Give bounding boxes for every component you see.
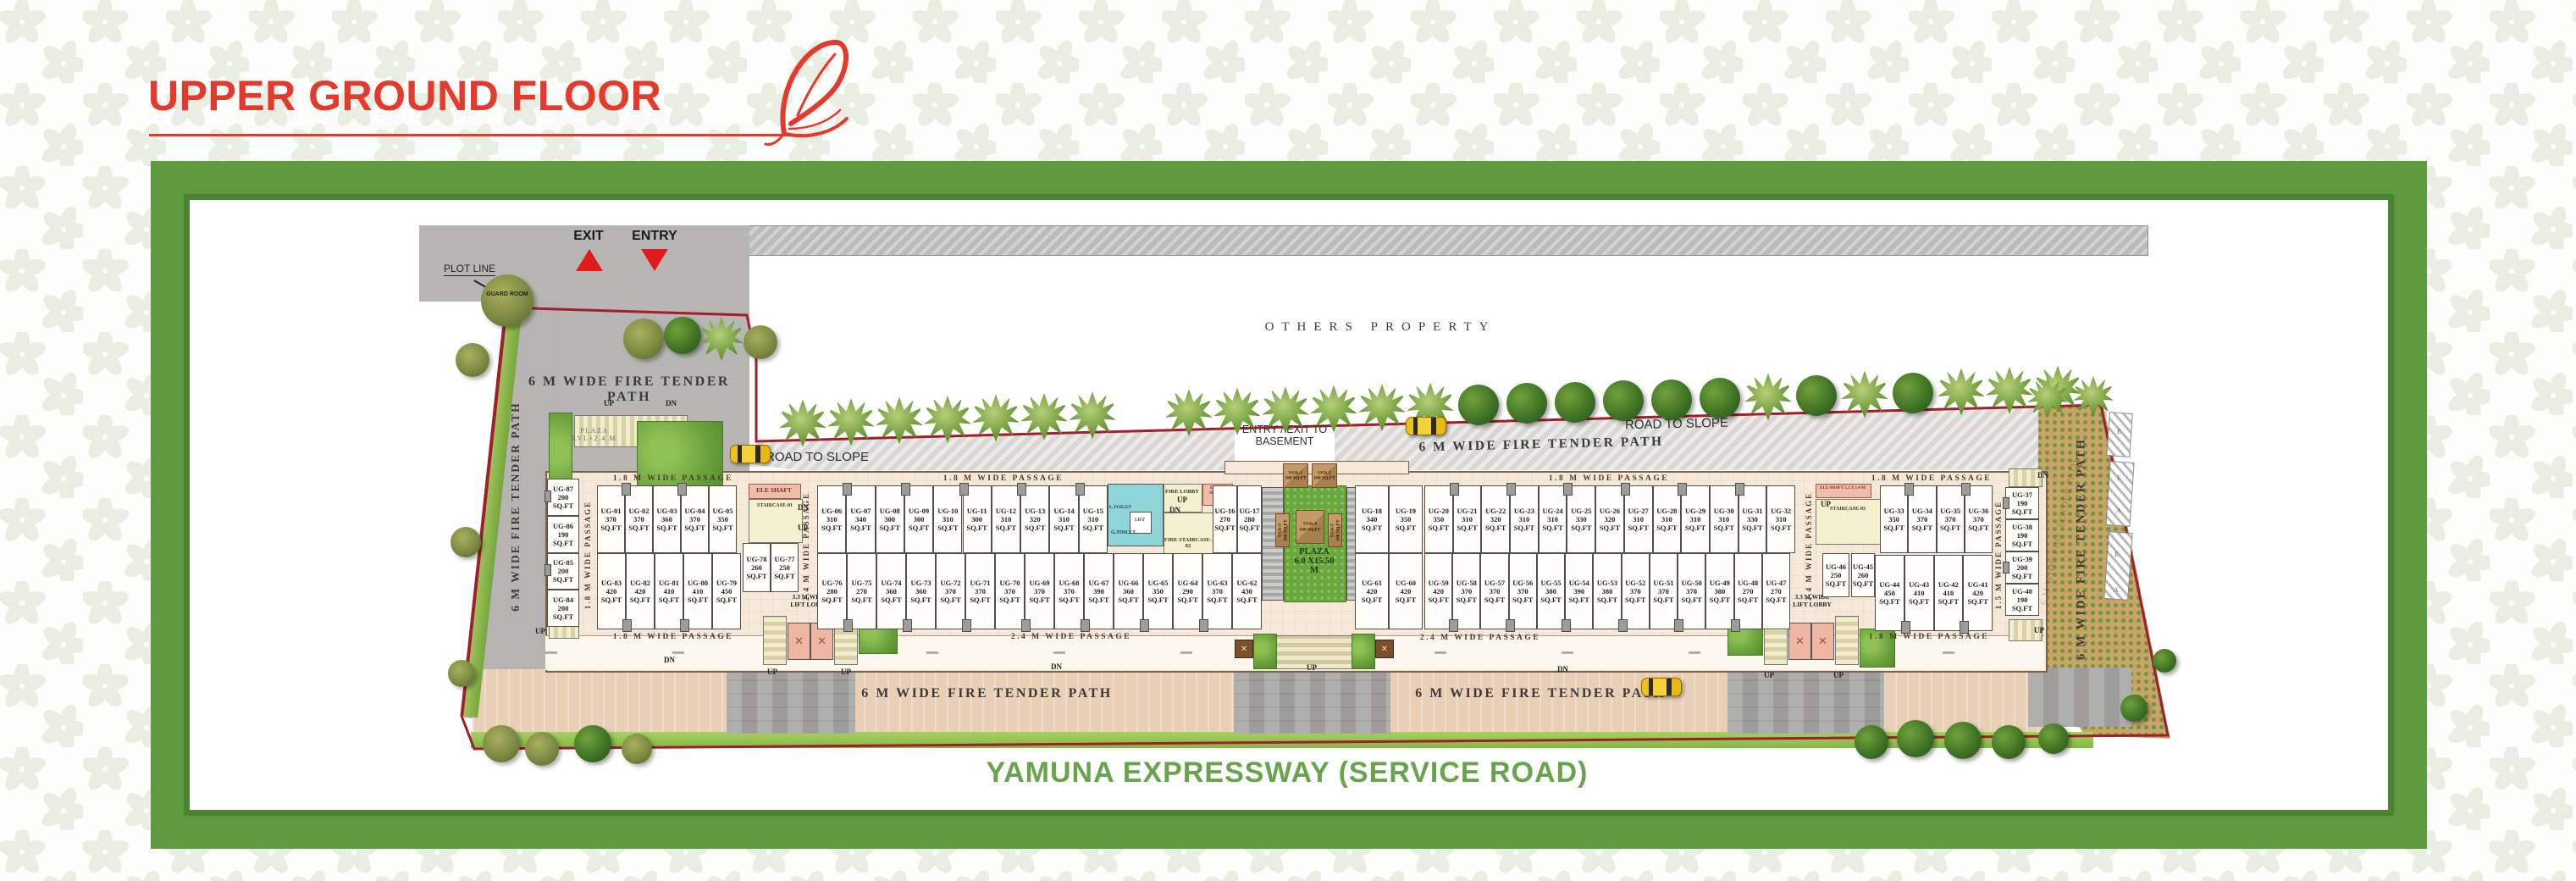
unit-UG-32: UG-32 310 SQ.FT	[1766, 485, 1795, 553]
unit-label-UG-29: UG-29 310 SQ.FT	[1685, 507, 1705, 532]
up-marker: UP	[1821, 500, 1831, 508]
unit-UG-53: UG-53 380 SQ.FT	[1593, 553, 1621, 629]
unit-label-UG-60: UG-60 420 SQ.FT	[1396, 579, 1416, 604]
unit-label-UG-82: UG-82 420 SQ.FT	[630, 579, 650, 604]
unit-UG-21: UG-21 310 SQ.FT	[1453, 485, 1482, 553]
unit-label-UG-31: UG-31 330 SQ.FT	[1742, 507, 1762, 532]
up-marker: UP	[1177, 496, 1187, 504]
passage-label-p18: 1.8 M WIDE PASSAGE	[597, 633, 749, 641]
kiosk-UGk-2: UGk-2 160 SQ.FT	[1312, 463, 1337, 488]
unit-label-UG-86: UG-86 190 SQ.FT	[553, 522, 573, 547]
unit-label-UG-33: UG-33 350 SQ.FT	[1883, 507, 1904, 532]
up-marker: UP	[767, 668, 777, 676]
up-marker: UP	[1764, 671, 1774, 679]
unit-UG-04: UG-04 370 SQ.FT	[681, 485, 709, 553]
lift-box: ✕	[1811, 623, 1834, 660]
unit-label-UG-79: UG-79 450 SQ.FT	[716, 579, 737, 604]
unit-label-UG-36: UG-36 370 SQ.FT	[1968, 507, 1988, 532]
fire-path-bottom-left-label: 6 M WIDE FIRE TENDER PATH	[854, 686, 1120, 701]
unit-UG-78: UG-78 260 SQ.FT	[743, 543, 771, 592]
passage-label-p18: 1.8 M WIDE PASSAGE	[1533, 474, 1685, 483]
unit-label-UG-49: UG-49 380 SQ.FT	[1710, 579, 1730, 604]
unit-UG-30: UG-30 310 SQ.FT	[1710, 485, 1739, 553]
unit-label-UG-14: UG-14 310 SQ.FT	[1053, 507, 1074, 532]
floor-plan: ✕ ✕ ✕ ✕ ✕ ✕	[0, 0, 2576, 881]
unit-label-UG-72: UG-72 370 SQ.FT	[940, 579, 960, 604]
dn-marker: DN	[1051, 662, 1062, 671]
unit-label-UG-67: UG-67 390 SQ.FT	[1088, 579, 1108, 604]
lobby-stair	[763, 616, 787, 665]
unit-label-UG-17: UG-17 280 SQ.FT	[1239, 507, 1259, 532]
unit-label-UG-48: UG-48 270 SQ.FT	[1738, 579, 1758, 604]
tree-icon	[1992, 725, 2026, 759]
kiosk-UGk-1: UGk-1 160 SQ.FT	[1283, 463, 1308, 488]
passage-label-p18: 1.8 M WIDE PASSAGE	[1853, 633, 2005, 641]
unit-UG-47: UG-47 270 SQ.FT	[1762, 553, 1790, 629]
unit-UG-61: UG-61 420 SQ.FT	[1355, 553, 1389, 629]
unit-UG-43: UG-43 410 SQ.FT	[1904, 555, 1934, 631]
unit-label-UG-09: UG-09 300 SQ.FT	[909, 507, 929, 532]
unit-UG-11: UG-11 300 SQ.FT	[963, 485, 992, 553]
unit-label-UG-21: UG-21 310 SQ.FT	[1457, 507, 1477, 532]
unit-label-UG-16: UG-16 270 SQ.FT	[1214, 507, 1235, 532]
unit-label-UG-69: UG-69 370 SQ.FT	[1029, 579, 1049, 604]
unit-label-UG-57: UG-57 370 SQ.FT	[1484, 579, 1505, 604]
ramp-letter-2: A	[2116, 507, 2121, 514]
tree-icon	[1700, 378, 1740, 418]
unit-UG-44: UG-44 450 SQ.FT	[1875, 555, 1904, 631]
tree-icon	[1651, 380, 1692, 420]
tree-icon	[744, 325, 777, 359]
exit-label: EXIT	[566, 229, 611, 244]
unit-UG-65: UG-65 350 SQ.FT	[1143, 553, 1173, 629]
unit-label-UG-38: UG-38 190 SQ.FT	[2012, 523, 2032, 548]
tree-icon	[1506, 383, 1547, 424]
unit-UG-67: UG-67 390 SQ.FT	[1084, 553, 1114, 629]
passage-label-p18: 1.8 M WIDE PASSAGE	[583, 501, 592, 609]
unit-UG-73: UG-73 360 SQ.FT	[906, 553, 936, 629]
unit-UG-55: UG-55 380 SQ.FT	[1537, 553, 1565, 629]
unit-UG-62: UG-62 430 SQ.FT	[1232, 553, 1262, 629]
unit-UG-86: UG-86 190 SQ.FT	[547, 516, 579, 553]
unit-UG-75: UG-75 270 SQ.FT	[847, 553, 876, 629]
exit-arrow-icon	[576, 249, 603, 271]
unit-label-UG-23: UG-23 310 SQ.FT	[1514, 507, 1534, 532]
unit-UG-84: UG-84 200 SQ.FT	[547, 590, 579, 627]
unit-UG-05: UG-05 350 SQ.FT	[709, 485, 737, 553]
unit-UG-20: UG-20 350 SQ.FT	[1424, 485, 1453, 553]
unit-label-UG-50: UG-50 370 SQ.FT	[1682, 579, 1702, 604]
unit-UG-42: UG-42 410 SQ.FT	[1934, 555, 1964, 631]
unit-label-UG-34: UG-34 370 SQ.FT	[1912, 507, 1932, 532]
unit-UG-76: UG-76 280 SQ.FT	[817, 553, 847, 629]
others-property-label: OTHERS PROPERTY	[1152, 320, 1609, 335]
taxi-car-icon	[730, 445, 771, 463]
unit-label-UG-35: UG-35 370 SQ.FT	[1940, 507, 1960, 532]
unit-UG-10: UG-10 310 SQ.FT	[933, 485, 962, 553]
unit-label-UG-41: UG-41 420 SQ.FT	[1967, 580, 1987, 606]
plaza-upper-label: PLAZA LVL+2.4 M	[559, 427, 630, 442]
unit-label-UG-80: UG-80 410 SQ.FT	[688, 579, 708, 604]
unit-label-UG-74: UG-74 360 SQ.FT	[881, 579, 901, 604]
unit-label-UG-15: UG-15 310 SQ.FT	[1083, 507, 1103, 532]
unit-label-UG-04: UG-04 370 SQ.FT	[684, 507, 705, 532]
unit-UG-33: UG-33 350 SQ.FT	[1880, 485, 1908, 553]
guard-room-tree-icon	[481, 274, 533, 327]
dn-marker: DN	[798, 503, 809, 512]
unit-label-UG-73: UG-73 360 SQ.FT	[910, 579, 931, 604]
unit-UG-58: UG-58 370 SQ.FT	[1452, 553, 1480, 629]
unit-UG-12: UG-12 310 SQ.FT	[992, 485, 1020, 553]
dn-marker: DN	[2037, 471, 2048, 479]
unit-UG-39: UG-39 200 SQ.FT	[2005, 551, 2039, 584]
unit-label-UG-81: UG-81 410 SQ.FT	[659, 579, 679, 604]
unit-UG-16: UG-16 270 SQ.FT	[1213, 485, 1237, 553]
entry-label: ENTRY	[627, 229, 682, 244]
lift-box: ✕	[1788, 623, 1811, 660]
unit-UG-45: UG-45 260 SQ.FT	[1851, 553, 1875, 597]
unit-label-UG-47: UG-47 270 SQ.FT	[1766, 579, 1786, 604]
passage-label-p24: 2.4 M WIDE PASSAGE	[1404, 634, 1556, 642]
passage-label-p15: 1.5 M WIDE PASSAGE	[1994, 501, 2003, 609]
dn-marker: DN	[1169, 506, 1180, 514]
unit-UG-77: UG-77 250 SQ.FT	[771, 543, 799, 592]
lift-box: ✕	[788, 623, 810, 660]
plot-line-label: PLOT LINE	[444, 263, 495, 276]
unit-UG-27: UG-27 310 SQ.FT	[1624, 485, 1653, 553]
unit-label-UG-27: UG-27 310 SQ.FT	[1628, 507, 1649, 532]
unit-label-UG-10: UG-10 310 SQ.FT	[937, 507, 958, 532]
unit-UG-68: UG-68 370 SQ.FT	[1054, 553, 1084, 629]
passage-label-p18: 1.8 M WIDE PASSAGE	[1855, 474, 2008, 483]
unit-UG-13: UG-13 320 SQ.FT	[1020, 485, 1049, 553]
unit-label-UG-02: UG-02 370 SQ.FT	[628, 507, 649, 532]
unit-label-UG-70: UG-70 370 SQ.FT	[999, 579, 1020, 604]
unit-UG-56: UG-56 370 SQ.FT	[1509, 553, 1537, 629]
unit-label-UG-85: UG-85 200 SQ.FT	[553, 558, 573, 584]
unit-UG-87: UG-87 200 SQ.FT	[547, 479, 579, 516]
fire-path-left-block-label: 6 M WIDE FIRE TENDER PATH	[506, 374, 752, 405]
unit-UG-35: UG-35 370 SQ.FT	[1937, 485, 1965, 553]
unit-label-UG-28: UG-28 310 SQ.FT	[1656, 507, 1677, 532]
guard-room-label: GUARD ROOM	[483, 291, 532, 297]
unit-label-UG-22: UG-22 320 SQ.FT	[1485, 507, 1506, 532]
tree-icon	[664, 317, 701, 354]
kiosk-label-UGk-5: UGk-5 160 SQ.FT	[1329, 519, 1341, 540]
unit-label-UG-76: UG-76 280 SQ.FT	[821, 579, 842, 604]
unit-label-UG-07: UG-07 340 SQ.FT	[850, 507, 871, 532]
unit-UG-64: UG-64 290 SQ.FT	[1173, 553, 1202, 629]
unit-UG-28: UG-28 310 SQ.FT	[1653, 485, 1682, 553]
unit-label-UG-55: UG-55 380 SQ.FT	[1540, 579, 1561, 604]
unit-label-UG-44: UG-44 450 SQ.FT	[1879, 580, 1899, 606]
unit-label-UG-64: UG-64 290 SQ.FT	[1177, 579, 1197, 604]
unit-label-UG-52: UG-52 370 SQ.FT	[1625, 579, 1645, 604]
unit-label-UG-43: UG-43 410 SQ.FT	[1909, 580, 1929, 606]
unit-label-UG-78: UG-78 260 SQ.FT	[746, 555, 766, 580]
tree-icon	[1944, 722, 1982, 759]
unit-UG-83: UG-83 420 SQ.FT	[597, 553, 626, 629]
unit-UG-29: UG-29 310 SQ.FT	[1681, 485, 1710, 553]
unit-label-UG-77: UG-77 250 SQ.FT	[774, 555, 794, 580]
passage-label-p24: 2.4 M WIDE PASSAGE	[995, 633, 1147, 641]
unit-UG-02: UG-02 370 SQ.FT	[625, 485, 653, 553]
unit-UG-50: UG-50 370 SQ.FT	[1678, 553, 1705, 629]
unit-UG-41: UG-41 420 SQ.FT	[1963, 555, 1993, 631]
ramp-letter-3: E	[2114, 551, 2119, 558]
tree-icon	[2038, 723, 2069, 754]
unit-UG-85: UG-85 200 SQ.FT	[547, 553, 579, 590]
unit-label-UG-68: UG-68 370 SQ.FT	[1059, 579, 1079, 604]
unit-UG-15: UG-15 310 SQ.FT	[1079, 485, 1108, 553]
unit-label-UG-87: UG-87 200 SQ.FT	[553, 485, 573, 510]
unit-label-UG-06: UG-06 310 SQ.FT	[821, 507, 842, 532]
ramp-letter-0: E	[2117, 428, 2121, 435]
unit-UG-25: UG-25 330 SQ.FT	[1567, 485, 1595, 553]
unit-UG-03: UG-03 360 SQ.FT	[653, 485, 681, 553]
ramp-letter-4: A	[2114, 586, 2119, 594]
unit-UG-82: UG-82 420 SQ.FT	[626, 553, 655, 629]
unit-UG-37: UG-37 190 SQ.FT	[2005, 487, 2039, 519]
tree-icon	[448, 660, 475, 687]
unit-UG-08: UG-08 300 SQ.FT	[876, 485, 904, 553]
fire-path-left-vertical-label: 6 M WIDE FIRE TENDER PATH	[509, 402, 522, 611]
tree-icon	[2120, 695, 2148, 722]
unit-label-UG-20: UG-20 350 SQ.FT	[1429, 507, 1449, 532]
unit-UG-60: UG-60 420 SQ.FT	[1389, 553, 1423, 629]
unit-UG-26: UG-26 320 SQ.FT	[1595, 485, 1624, 553]
ele-shaft-3-label: ELE SHAFT 5.2 X 1.4 M	[1816, 486, 1870, 490]
unit-UG-81: UG-81 410 SQ.FT	[655, 553, 683, 629]
unit-UG-72: UG-72 370 SQ.FT	[936, 553, 965, 629]
unit-label-UG-19: UG-19 350 SQ.FT	[1396, 507, 1416, 532]
tree-icon	[1458, 385, 1499, 425]
unit-UG-54: UG-54 390 SQ.FT	[1565, 553, 1593, 629]
tree-icon	[456, 343, 489, 377]
unit-label-UG-45: UG-45 260 SQ.FT	[1853, 562, 1873, 588]
unit-label-UG-63: UG-63 370 SQ.FT	[1207, 579, 1227, 604]
unit-UG-19: UG-19 350 SQ.FT	[1389, 485, 1423, 553]
unit-UG-49: UG-49 380 SQ.FT	[1705, 553, 1733, 629]
unit-label-UG-66: UG-66 360 SQ.FT	[1118, 579, 1138, 604]
unit-label-UG-03: UG-03 360 SQ.FT	[656, 507, 677, 532]
unit-label-UG-84: UG-84 200 SQ.FT	[553, 596, 573, 621]
kiosk-label-UGk-1: UGk-1 160 SQ.FT	[1285, 470, 1306, 481]
unit-UG-06: UG-06 310 SQ.FT	[817, 485, 846, 553]
unit-UG-63: UG-63 370 SQ.FT	[1202, 553, 1232, 629]
kiosk-UGk-3: UGk-3 160 SQ.FT	[1275, 513, 1290, 547]
unit-label-UG-30: UG-30 310 SQ.FT	[1714, 507, 1734, 532]
unit-UG-71: UG-71 370 SQ.FT	[965, 553, 995, 629]
ele-shaft-1-label: ELE SHAFT	[749, 486, 799, 494]
tree-icon	[2153, 649, 2176, 673]
unit-label-UG-37: UG-37 190 SQ.FT	[2012, 490, 2032, 516]
tree-icon	[1893, 373, 1933, 413]
service-road-label: YAMUNA EXPRESSWAY (SERVICE ROAD)	[440, 756, 2134, 790]
paver-ramp	[2105, 461, 2134, 527]
kiosk-label-UGk-3: UGk-3 160 SQ.FT	[1277, 519, 1288, 540]
unit-UG-34: UG-34 370 SQ.FT	[1908, 485, 1936, 553]
plaza-center-label: PLAZA 6.0 X15.50 M	[1280, 547, 1349, 575]
unit-UG-17: UG-17 280 SQ.FT	[1237, 485, 1262, 553]
tree-icon	[1796, 375, 1837, 416]
unit-UG-23: UG-23 310 SQ.FT	[1510, 485, 1539, 553]
unit-label-UG-56: UG-56 370 SQ.FT	[1512, 579, 1533, 604]
unit-UG-14: UG-14 310 SQ.FT	[1049, 485, 1078, 553]
up-marker: UP	[604, 399, 614, 407]
unit-label-UG-51: UG-51 370 SQ.FT	[1653, 579, 1673, 604]
unit-UG-40: UG-40 190 SQ.FT	[2005, 584, 2039, 616]
unit-UG-38: UG-38 190 SQ.FT	[2005, 519, 2039, 551]
up-marker: UP	[2034, 626, 2044, 634]
unit-UG-80: UG-80 410 SQ.FT	[683, 553, 712, 629]
taxi-car-icon	[1406, 417, 1446, 435]
unit-label-UG-58: UG-58 370 SQ.FT	[1457, 579, 1477, 604]
kiosk-label-UGk-4: UGk-4 160 SQ.FT	[1299, 521, 1320, 532]
unit-label-UG-71: UG-71 370 SQ.FT	[970, 579, 990, 604]
unit-UG-18: UG-18 340 SQ.FT	[1355, 485, 1389, 553]
passage-label-p18: 1.8 M WIDE PASSAGE	[927, 474, 1080, 483]
unit-label-UG-24: UG-24 310 SQ.FT	[1542, 507, 1562, 532]
unit-label-UG-11: UG-11 300 SQ.FT	[966, 507, 987, 532]
unit-label-UG-42: UG-42 410 SQ.FT	[1938, 580, 1959, 606]
dn-marker: DN	[1557, 665, 1568, 673]
tree-icon	[1603, 380, 1644, 421]
unit-label-UG-65: UG-65 350 SQ.FT	[1147, 579, 1168, 604]
unit-UG-79: UG-79 450 SQ.FT	[712, 553, 741, 629]
up-marker: UP	[1833, 671, 1844, 679]
unit-label-UG-83: UG-83 420 SQ.FT	[601, 579, 622, 604]
g-toilet-label: G.TOILET	[1111, 530, 1150, 535]
unit-UG-48: UG-48 270 SQ.FT	[1734, 553, 1762, 629]
taxi-car-icon	[1641, 678, 1682, 696]
planter-box-icon: ✕	[1375, 640, 1394, 658]
unit-UG-51: UG-51 370 SQ.FT	[1650, 553, 1678, 629]
unit-label-UG-75: UG-75 270 SQ.FT	[851, 579, 871, 604]
planter-box-icon: ✕	[1235, 640, 1253, 658]
tree-icon	[451, 527, 481, 557]
up-marker: UP	[798, 524, 808, 532]
up-marker: UP	[535, 627, 545, 635]
unit-label-UG-18: UG-18 340 SQ.FT	[1362, 507, 1382, 532]
unit-UG-22: UG-22 320 SQ.FT	[1481, 485, 1510, 553]
staircase-1-label: STAIRCASE-01	[749, 503, 801, 508]
unit-UG-24: UG-24 310 SQ.FT	[1539, 485, 1567, 553]
unit-label-UG-53: UG-53 380 SQ.FT	[1597, 579, 1617, 604]
unit-label-UG-08: UG-08 300 SQ.FT	[880, 507, 900, 532]
up-marker: UP	[1307, 663, 1317, 672]
dn-marker: DN	[664, 656, 675, 664]
ramp-letter-1: E	[2117, 474, 2121, 482]
unit-UG-57: UG-57 370 SQ.FT	[1480, 553, 1508, 629]
unit-label-UG-32: UG-32 310 SQ.FT	[1771, 507, 1791, 532]
unit-UG-01: UG-01 370 SQ.FT	[597, 485, 625, 553]
unit-label-UG-61: UG-61 420 SQ.FT	[1362, 579, 1382, 604]
passage-label-p24: 2.4 M WIDE PASSAGE	[1805, 492, 1813, 601]
unit-label-UG-46: UG-46 250 SQ.FT	[1826, 562, 1846, 588]
entry-arrow-icon	[641, 249, 668, 271]
unit-UG-69: UG-69 370 SQ.FT	[1025, 553, 1054, 629]
passage-label-p18: 1.8 M WIDE PASSAGE	[597, 474, 749, 483]
unit-label-UG-62: UG-62 430 SQ.FT	[1236, 579, 1257, 604]
unit-UG-09: UG-09 300 SQ.FT	[904, 485, 933, 553]
kiosk-label-UGk-2: UGk-2 160 SQ.FT	[1313, 470, 1335, 481]
unit-label-UG-54: UG-54 390 SQ.FT	[1569, 579, 1589, 604]
unit-UG-36: UG-36 370 SQ.FT	[1965, 485, 1993, 553]
l-toilet-label: L.TOILET	[1109, 505, 1147, 510]
unit-label-UG-40: UG-40 190 SQ.FT	[2012, 587, 2032, 612]
kiosk-UGk-4: UGk-4 160 SQ.FT	[1296, 510, 1324, 544]
unit-UG-70: UG-70 370 SQ.FT	[995, 553, 1025, 629]
unit-UG-46: UG-46 250 SQ.FT	[1822, 553, 1849, 597]
unit-label-UG-59: UG-59 420 SQ.FT	[1428, 579, 1448, 604]
fire-path-bottom-right-label: 6 M WIDE FIRE TENDER PATH	[1407, 686, 1674, 701]
unit-label-UG-26: UG-26 320 SQ.FT	[1600, 507, 1620, 532]
planter	[1352, 634, 1375, 669]
planter	[1253, 634, 1277, 669]
tree-icon	[1555, 382, 1595, 423]
unit-UG-66: UG-66 360 SQ.FT	[1114, 553, 1143, 629]
brochure-page: UPPER GROUND FLOOR	[0, 0, 2576, 881]
unit-UG-59: UG-59 420 SQ.FT	[1424, 553, 1452, 629]
unit-UG-07: UG-07 340 SQ.FT	[846, 485, 875, 553]
unit-label-UG-13: UG-13 320 SQ.FT	[1025, 507, 1045, 532]
tree-icon	[623, 319, 664, 359]
dn-marker: DN	[666, 399, 677, 407]
tree-icon	[1855, 725, 1888, 759]
unit-UG-74: UG-74 360 SQ.FT	[876, 553, 906, 629]
unit-label-UG-01: UG-01 370 SQ.FT	[600, 507, 621, 532]
unit-label-UG-05: UG-05 350 SQ.FT	[712, 507, 732, 532]
lift-label: LIFT	[1130, 518, 1150, 523]
fire-lobby-label: FIRE LOBBY	[1165, 489, 1199, 495]
kiosk-UGk-5: UGk-5 160 SQ.FT	[1328, 513, 1342, 547]
fire-staircase-2-label: FIRE STAIRCASE-02	[1162, 537, 1214, 549]
tree-icon	[1897, 720, 1934, 757]
unit-label-UG-12: UG-12 310 SQ.FT	[996, 507, 1016, 532]
unit-label-UG-39: UG-39 200 SQ.FT	[2012, 555, 2032, 580]
up-marker: UP	[841, 668, 851, 676]
unit-UG-31: UG-31 330 SQ.FT	[1739, 485, 1767, 553]
unit-UG-52: UG-52 370 SQ.FT	[1622, 553, 1650, 629]
unit-label-UG-25: UG-25 330 SQ.FT	[1571, 507, 1591, 532]
